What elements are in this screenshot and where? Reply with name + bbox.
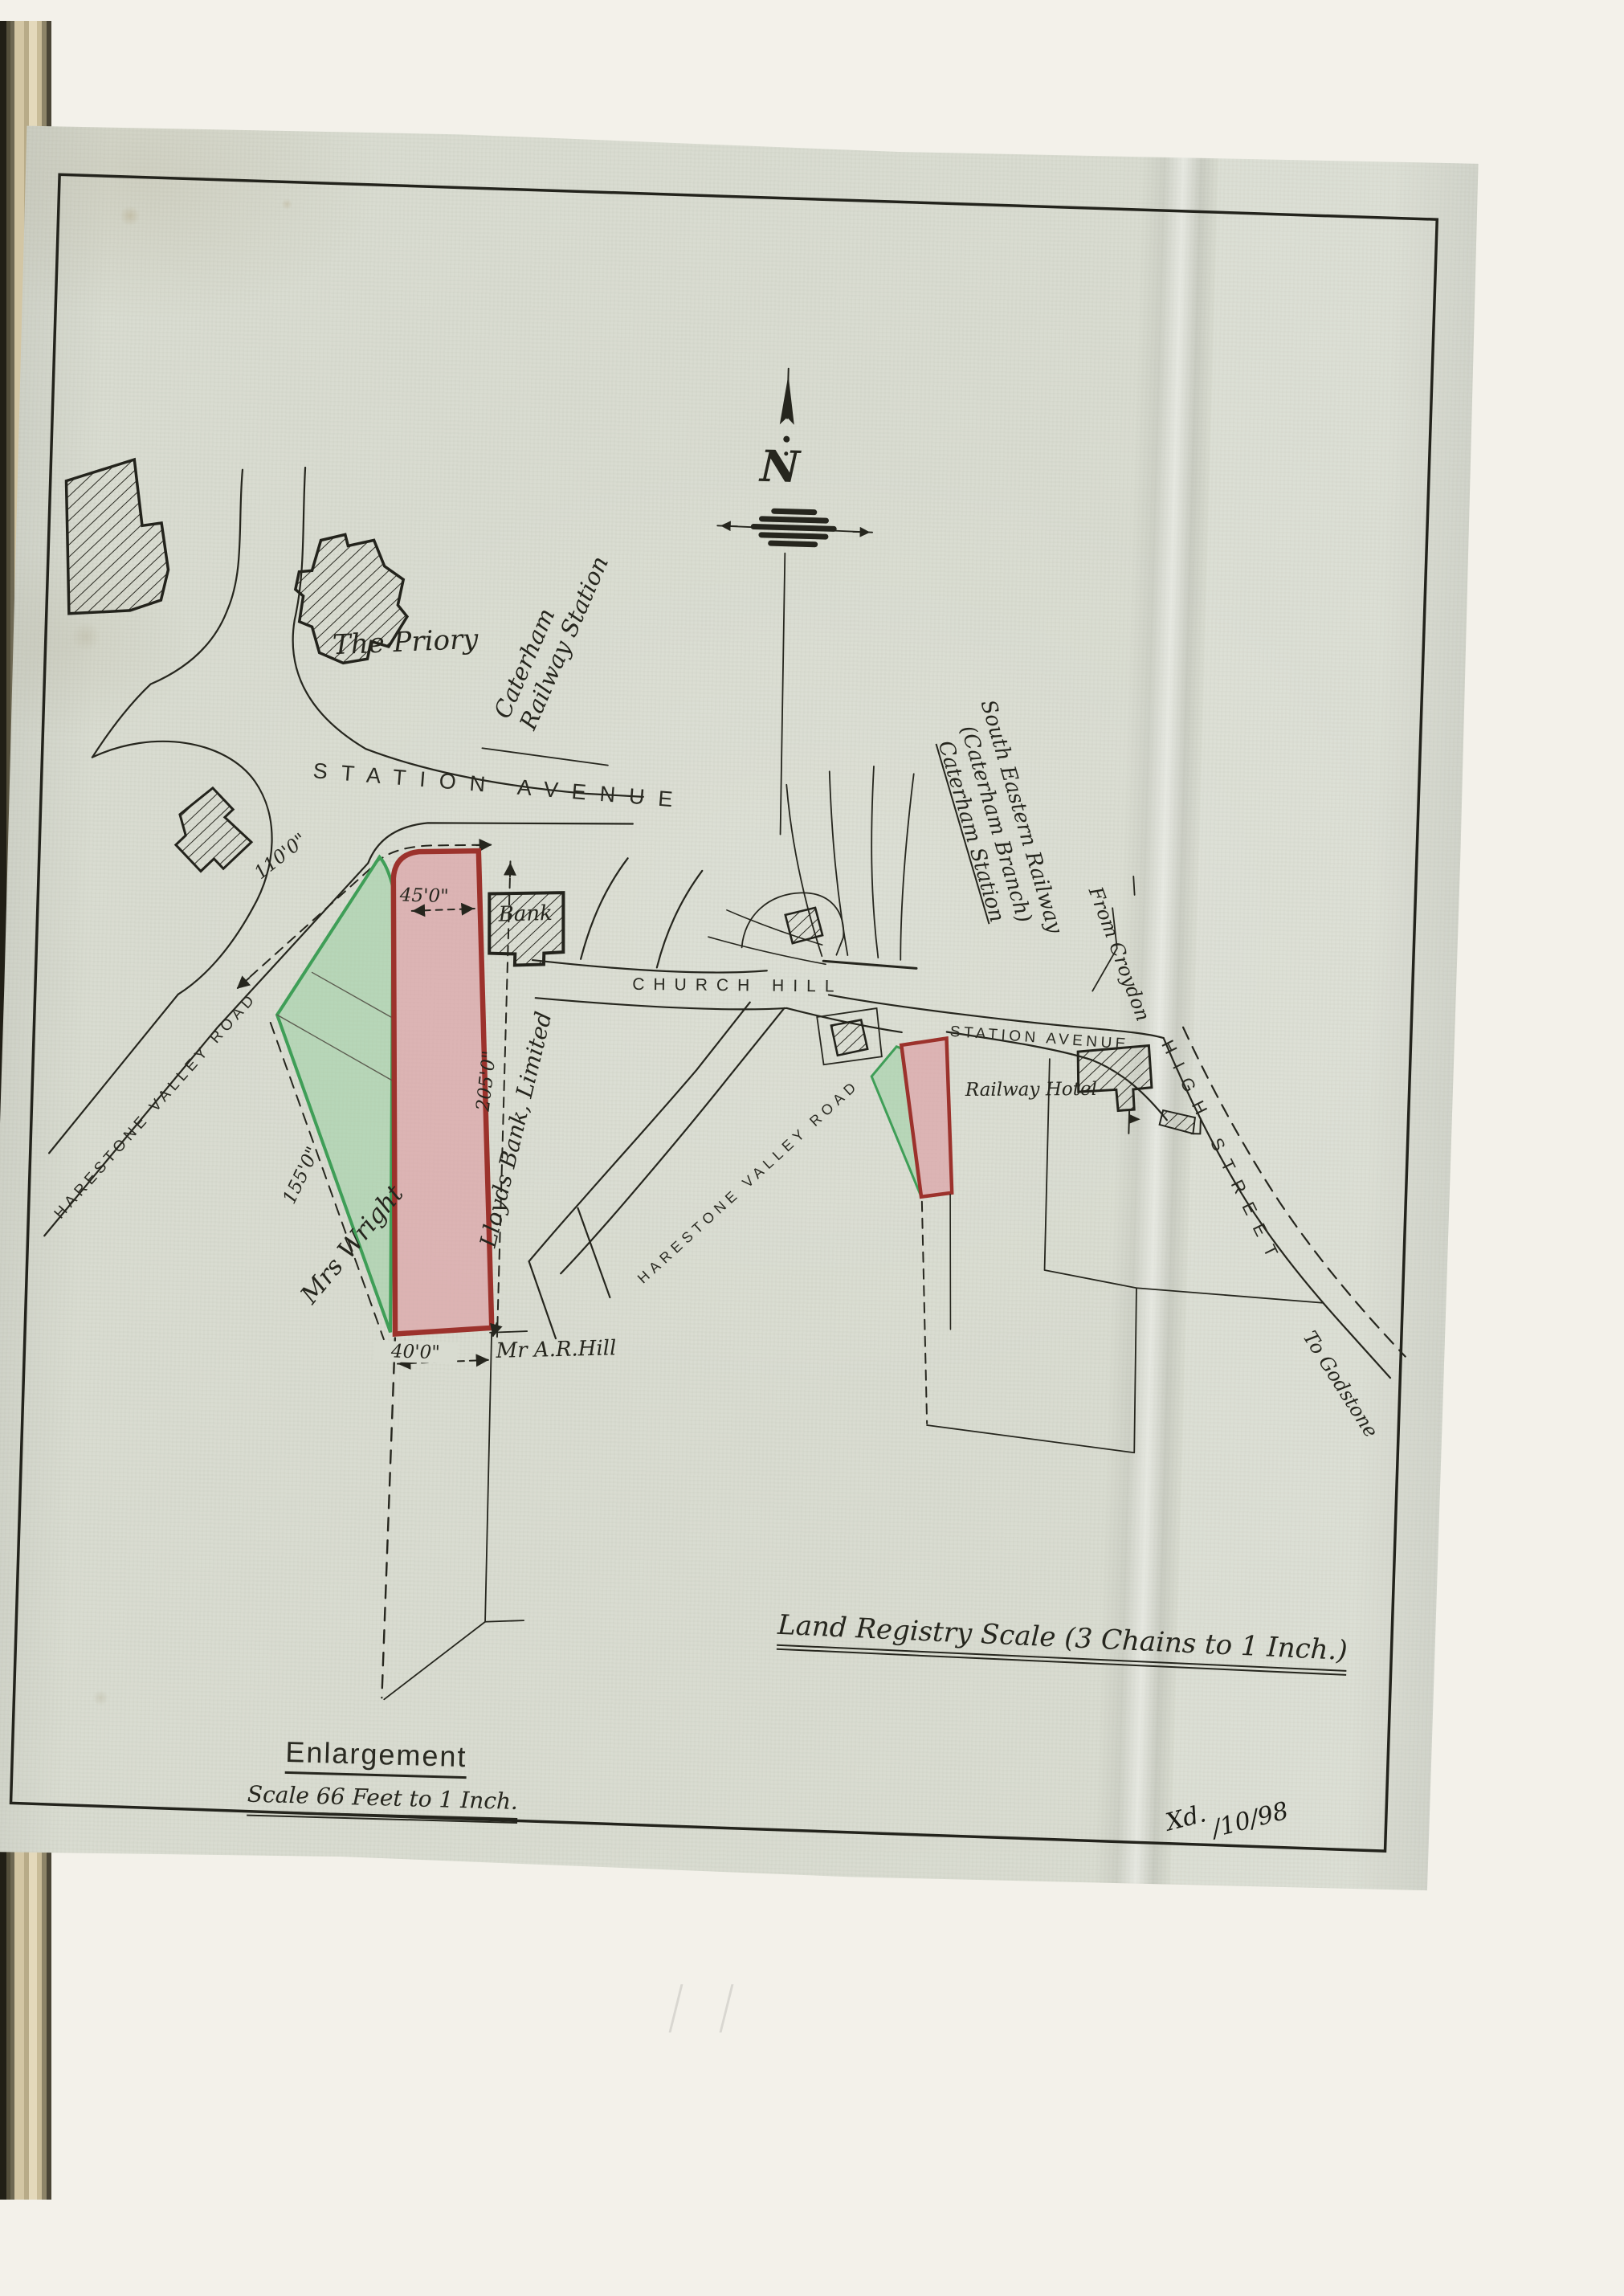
- mr-hill-label: Mr A.R.Hill: [496, 1336, 617, 1363]
- border-frame: [10, 174, 1437, 1851]
- house-plot-boundary: [86, 739, 275, 997]
- road-fork: [527, 1261, 558, 1338]
- dim-45-label: 45'0": [380, 884, 469, 908]
- photograph-background: The Priory STATION AVENUE Caterham Railw…: [0, 0, 1624, 2296]
- north-arrow: [709, 366, 877, 836]
- side-road: [657, 869, 702, 968]
- church-hill-north-edge: [532, 960, 767, 974]
- railway-line: [868, 766, 883, 958]
- railway-line: [824, 771, 852, 955]
- small-building: [785, 907, 823, 944]
- pencil-mark: [669, 1984, 734, 2032]
- station-platform: [823, 961, 916, 968]
- station-building-line: [482, 748, 608, 765]
- high-street-east-edge: [1174, 1027, 1414, 1357]
- enlargement-title: Enlargement: [285, 1735, 467, 1779]
- harestone-small-ne-edge: [561, 1002, 784, 1279]
- boundary-solid-south: [384, 1330, 493, 1702]
- parcel-boundary-dashed: [916, 1202, 933, 1424]
- dim-40-label: 40'0": [373, 1341, 458, 1364]
- building-northwest: [63, 458, 171, 617]
- harestone-small-sw-edge: [529, 996, 750, 1267]
- harestone-road-sw-edge: [49, 991, 178, 1156]
- enlargement-scale: Scale 66 Feet to 1 Inch.: [247, 1781, 518, 1824]
- north-letter: N: [759, 440, 800, 492]
- side-road: [581, 857, 628, 960]
- railway-hotel-building: [1076, 1044, 1153, 1112]
- priory-label: The Priory: [332, 623, 479, 662]
- plan-sheet: The Priory STATION AVENUE Caterham Railw…: [0, 121, 1481, 1896]
- boundary-dashed-south: [382, 1338, 395, 1697]
- railway-line: [900, 774, 914, 960]
- corner-house: [175, 787, 253, 873]
- bank-label: Bank: [498, 901, 553, 927]
- from-croydon-tick: [1133, 876, 1136, 895]
- boundary-tick-south: [485, 1620, 524, 1623]
- railway-hotel-label: Railway Hotel: [965, 1079, 1097, 1101]
- hill-boundary-tick: [490, 1330, 527, 1334]
- parcel-boundary-solid: [946, 1195, 954, 1330]
- map-linework: [0, 121, 1481, 1896]
- church-hill-label: CHURCH HILL: [632, 975, 843, 997]
